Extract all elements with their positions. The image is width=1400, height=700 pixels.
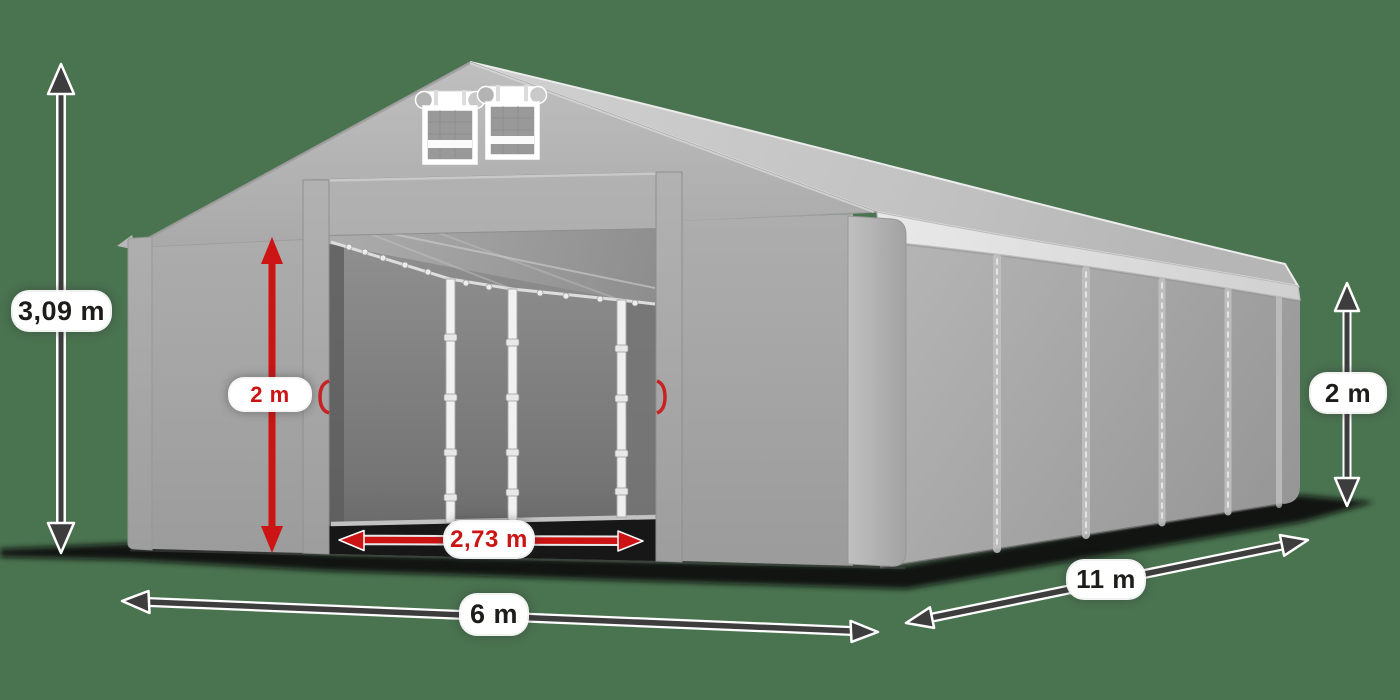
corner-column-left bbox=[128, 237, 152, 550]
door-column-right bbox=[656, 172, 682, 562]
interior-pole bbox=[444, 279, 457, 523]
total-height-label: 3,09 m bbox=[13, 292, 110, 330]
front-wall-right bbox=[682, 214, 853, 566]
vent-window-right bbox=[478, 85, 547, 157]
door-column-left bbox=[303, 180, 329, 554]
interior-pole bbox=[615, 300, 628, 517]
front-width-label: 6 m bbox=[461, 595, 527, 634]
tent-dimensions-diagram: 3,09 m 2 m 2,73 m 6 m 11 m 2 m bbox=[0, 0, 1400, 700]
tent-illustration bbox=[0, 0, 1400, 700]
interior-pole bbox=[506, 289, 519, 521]
door-header bbox=[303, 172, 682, 236]
entrance-width-label: 2,73 m bbox=[445, 522, 533, 557]
vent-window-left bbox=[416, 90, 485, 162]
entrance-height-label: 2 m bbox=[230, 379, 310, 410]
entrance-opening bbox=[329, 228, 656, 561]
side-wall-height-label: 2 m bbox=[1311, 374, 1385, 412]
corner-column-right bbox=[848, 216, 906, 566]
side-length-label: 11 m bbox=[1068, 561, 1144, 598]
